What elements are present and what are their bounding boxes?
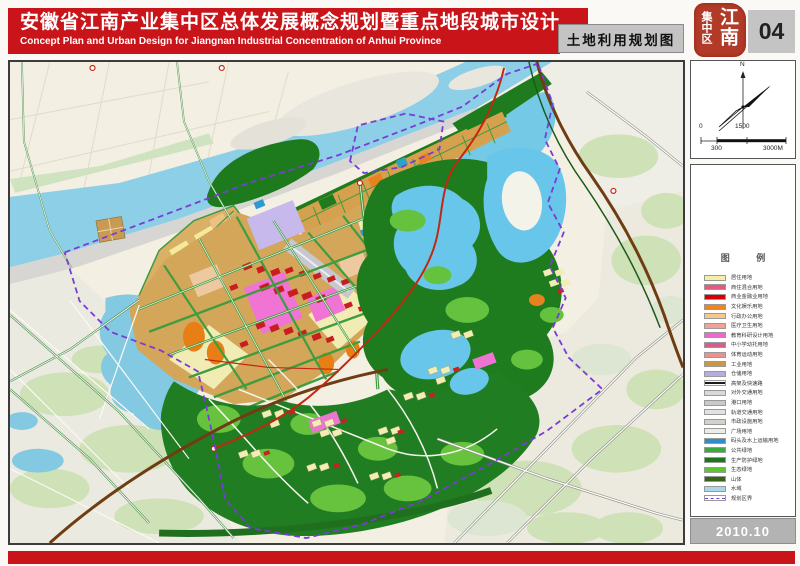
legend-label: 水域 (731, 485, 742, 492)
seal-stamp-icon: 江南 集中区 (694, 3, 746, 57)
legend-label: 山体 (731, 476, 742, 483)
legend-item: 医疗卫生用地 (704, 321, 795, 331)
legend-swatch (704, 476, 726, 482)
legend-item: 对外交通用地 (704, 388, 795, 398)
legend-swatch (704, 380, 726, 386)
shore-block (96, 216, 125, 242)
legend-swatch (704, 495, 726, 501)
legend-label: 规划区界 (731, 495, 752, 502)
legend-swatch (704, 361, 726, 367)
legend-label: 商住混合用地 (731, 284, 763, 291)
legend-item: 规划区界 (704, 494, 795, 504)
land-use-map (10, 62, 683, 543)
footer-red-bar (8, 551, 795, 564)
legend-label: 码头及水上运输用地 (731, 437, 779, 444)
legend-label: 对外交通用地 (731, 389, 763, 396)
legend-item: 轨道交通用地 (704, 407, 795, 417)
legend-item: 市政设施用地 (704, 417, 795, 427)
legend-item: 生产防护绿地 (704, 455, 795, 465)
legend-label: 港口用地 (731, 399, 752, 406)
legend-title: 图 例 (691, 251, 795, 264)
north-label: N (740, 61, 745, 68)
legend-item: 水域 (704, 484, 795, 494)
legend-swatch (704, 486, 726, 492)
legend-items: 居住用地商住混合用地商业金融业用地文化娱乐用地行政办公用地医疗卫生用地教育科研设… (691, 273, 795, 503)
sheet-number: 04 (748, 10, 795, 53)
legend-swatch (704, 342, 726, 348)
legend-swatch (704, 390, 726, 396)
legend-label: 公共绿地 (731, 447, 752, 454)
legend-item: 生态绿地 (704, 465, 795, 475)
legend-item: 教育科研设计用地 (704, 331, 795, 341)
legend-item: 广场用地 (704, 427, 795, 437)
legend-label: 生态绿地 (731, 466, 752, 473)
seal-text-main: 江南 (714, 7, 741, 47)
legend-swatch (704, 400, 726, 406)
legend-swatch (704, 284, 726, 290)
legend-label: 生产防护绿地 (731, 456, 763, 463)
legend-item: 山体 (704, 474, 795, 484)
legend-item: 行政办公用地 (704, 311, 795, 321)
scale-1500: 1500 (735, 123, 749, 130)
lakes-forest (357, 148, 573, 409)
legend-swatch (704, 304, 726, 310)
legend-swatch (704, 457, 726, 463)
legend-label: 教育科研设计用地 (731, 332, 773, 339)
scale-zero: 0 (699, 123, 703, 130)
legend-swatch (704, 294, 726, 300)
scale-300: 300 (711, 145, 722, 152)
legend-panel: 图 例 居住用地商住混合用地商业金融业用地文化娱乐用地行政办公用地医疗卫生用地教… (690, 164, 796, 517)
legend-item: 工业用地 (704, 359, 795, 369)
legend-swatch (704, 323, 726, 329)
legend-label: 工业用地 (731, 361, 752, 368)
north-scale-box: N 0 1500 300 3000M (690, 60, 796, 159)
legend-swatch (704, 313, 726, 319)
legend-label: 中小学幼托用地 (731, 341, 768, 348)
page-title: 安徽省江南产业集中区总体发展概念规划暨重点地段城市设计 (20, 11, 560, 35)
legend-item: 公共绿地 (704, 446, 795, 456)
legend-item: 文化娱乐用地 (704, 302, 795, 312)
legend-swatch (704, 275, 726, 281)
legend-swatch (704, 428, 726, 434)
legend-swatch (704, 352, 726, 358)
legend-item: 体育运动用地 (704, 350, 795, 360)
legend-swatch (704, 467, 726, 473)
legend-item: 居住用地 (704, 273, 795, 283)
legend-label: 仓储用地 (731, 370, 752, 377)
scale-3000m: 3000M (763, 145, 783, 152)
legend-swatch (704, 419, 726, 425)
legend-swatch (704, 371, 726, 377)
legend-label: 高架及快速路 (731, 380, 763, 387)
legend-label: 行政办公用地 (731, 313, 763, 320)
date-box: 2010.10 (690, 518, 796, 544)
legend-swatch (704, 438, 726, 444)
legend-label: 居住用地 (731, 274, 752, 281)
legend-swatch (704, 332, 726, 338)
legend-label: 轨道交通用地 (731, 408, 763, 415)
legend-item: 商住混合用地 (704, 283, 795, 293)
north-arrow-icon (691, 61, 795, 158)
legend-item: 中小学幼托用地 (704, 340, 795, 350)
legend-label: 体育运动用地 (731, 351, 763, 358)
map-canvas (8, 60, 685, 545)
seal-text-sub: 集中区 (698, 11, 714, 44)
page-subtitle: Concept Plan and Urban Design for Jiangn… (20, 35, 560, 48)
legend-item: 商业金融业用地 (704, 292, 795, 302)
map-title-box: 土地利用规划图 (558, 24, 684, 53)
legend-swatch (704, 447, 726, 453)
legend-label: 商业金融业用地 (731, 293, 768, 300)
legend-label: 市政设施用地 (731, 418, 763, 425)
legend-label: 广场用地 (731, 428, 752, 435)
legend-item: 仓储用地 (704, 369, 795, 379)
legend-item: 高架及快速路 (704, 379, 795, 389)
legend-label: 文化娱乐用地 (731, 303, 763, 310)
legend-swatch (704, 409, 726, 415)
legend-item: 码头及水上运输用地 (704, 436, 795, 446)
header-banner: 安徽省江南产业集中区总体发展概念规划暨重点地段城市设计 Concept Plan… (8, 8, 560, 54)
legend-label: 医疗卫生用地 (731, 322, 763, 329)
legend-item: 港口用地 (704, 398, 795, 408)
